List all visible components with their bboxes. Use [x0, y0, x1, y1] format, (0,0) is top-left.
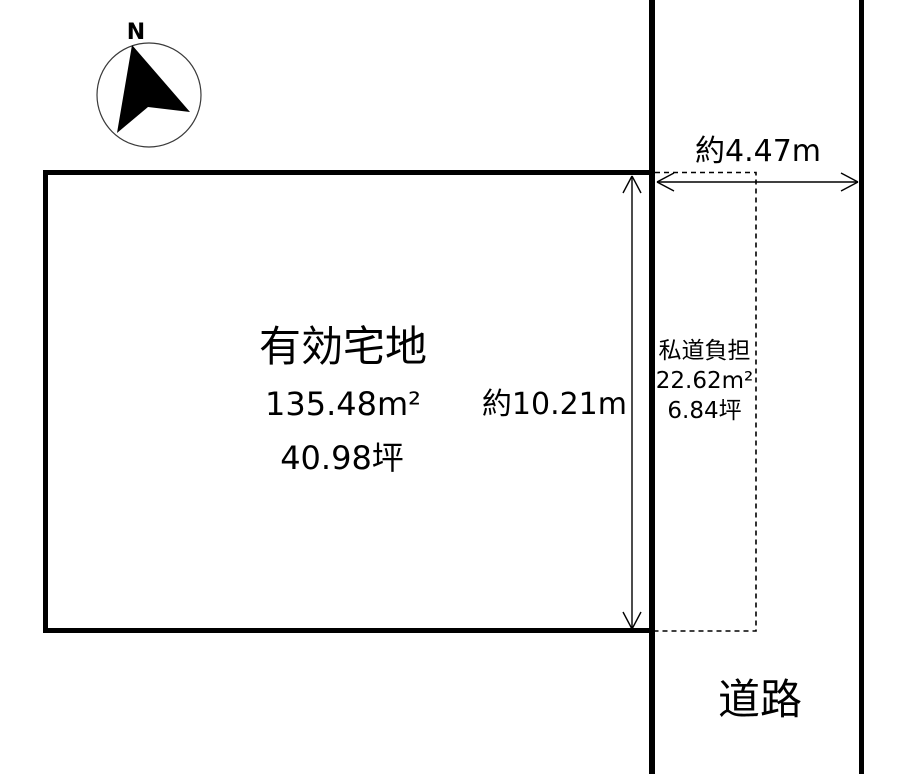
compass: [97, 43, 201, 147]
width-dimension-arrow: [657, 173, 858, 191]
width-dimension-label: 約4.47m: [658, 137, 858, 167]
private-road-area-tsubo: 6.84坪: [653, 396, 756, 426]
road-label: 道路: [660, 678, 860, 722]
plot-title: 有効宅地: [143, 325, 543, 369]
plot-area-tsubo: 40.98坪: [142, 440, 542, 476]
north-label: N: [106, 21, 166, 45]
land-plot-diagram: N 有効宅地 135.48m² 40.98坪 約10.21m 約4.47m 私道…: [0, 0, 920, 774]
private-road-area-m2: 22.62m²: [653, 366, 756, 396]
compass-north-needle-icon: [117, 45, 190, 133]
depth-dimension-label: 約10.21m: [482, 390, 627, 420]
private-road-title: 私道負担: [653, 336, 756, 366]
private-road-burden-block: 私道負担 22.62m² 6.84坪: [653, 336, 756, 426]
